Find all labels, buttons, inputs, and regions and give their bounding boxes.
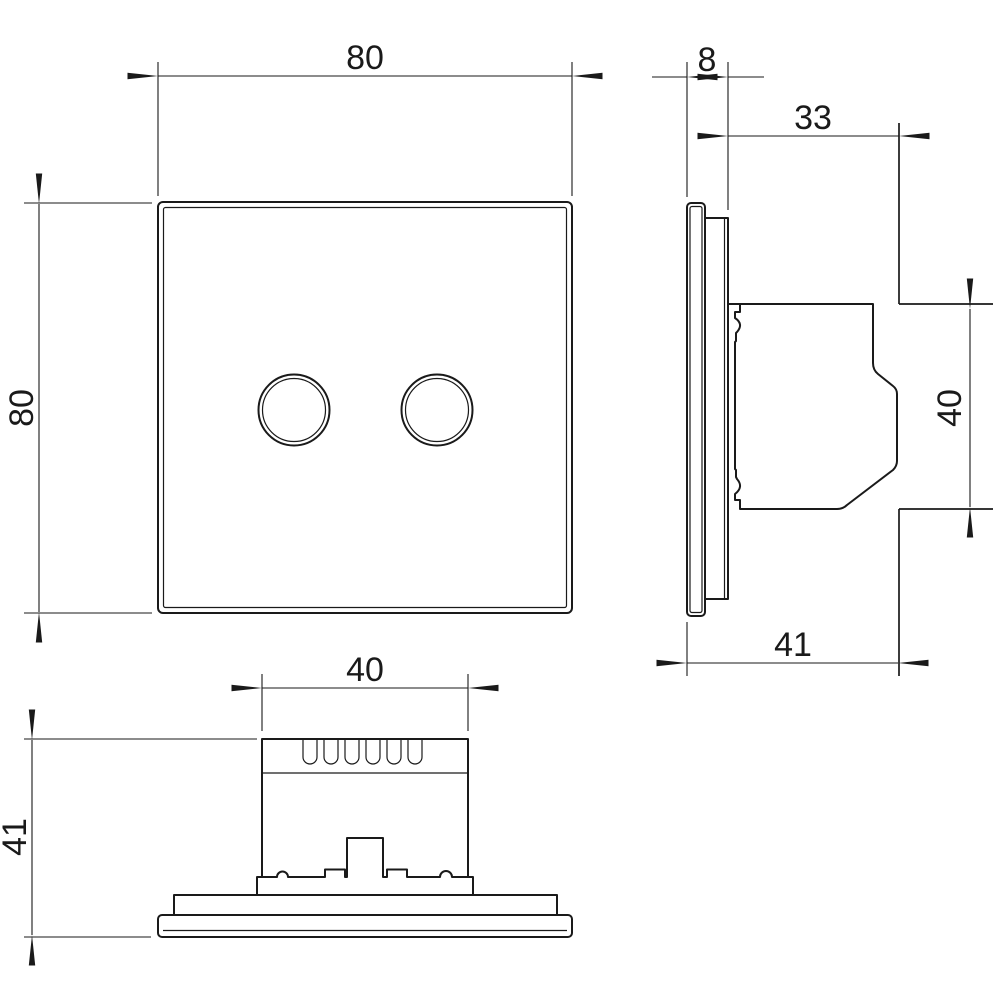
dimension-panel-thickness: 8 — [652, 41, 764, 210]
dimension-label: 41 — [0, 818, 34, 856]
dimension-label: 8 — [698, 41, 717, 79]
dimension-label: 80 — [346, 39, 384, 77]
dimension-label: 41 — [774, 626, 812, 664]
flange-step-left — [257, 877, 262, 894]
mechanism-body-bottom — [262, 739, 468, 877]
ventilation-slots — [303, 740, 422, 764]
glass-panel-bottom-outline — [158, 915, 572, 937]
glass-panel-front-outline — [158, 202, 572, 613]
dimension-front-width: 80 — [158, 39, 572, 196]
dimension-box-width: 40 — [262, 651, 468, 731]
mounting-plate-bottom — [174, 895, 557, 915]
mechanism-body-side — [728, 304, 897, 509]
dimension-label: 40 — [346, 651, 384, 689]
dimension-label: 80 — [3, 389, 41, 427]
dimension-label: 33 — [794, 99, 832, 137]
technical-drawing-canvas: 80 80 8 33 40 — [0, 0, 1000, 1000]
dimension-front-height: 80 — [3, 203, 152, 613]
mechanism-flange-edge — [262, 838, 468, 877]
bottom-view — [158, 739, 572, 937]
dimension-box-height: 40 — [931, 309, 970, 507]
drawing-sheet: 80 80 8 33 40 — [0, 0, 1000, 1000]
flange-step-right — [468, 877, 473, 894]
dimension-label: 40 — [931, 389, 969, 427]
front-view — [158, 202, 572, 613]
dimension-total-depth: 41 — [687, 622, 898, 676]
dimension-recess-depth: 33 — [728, 99, 899, 137]
